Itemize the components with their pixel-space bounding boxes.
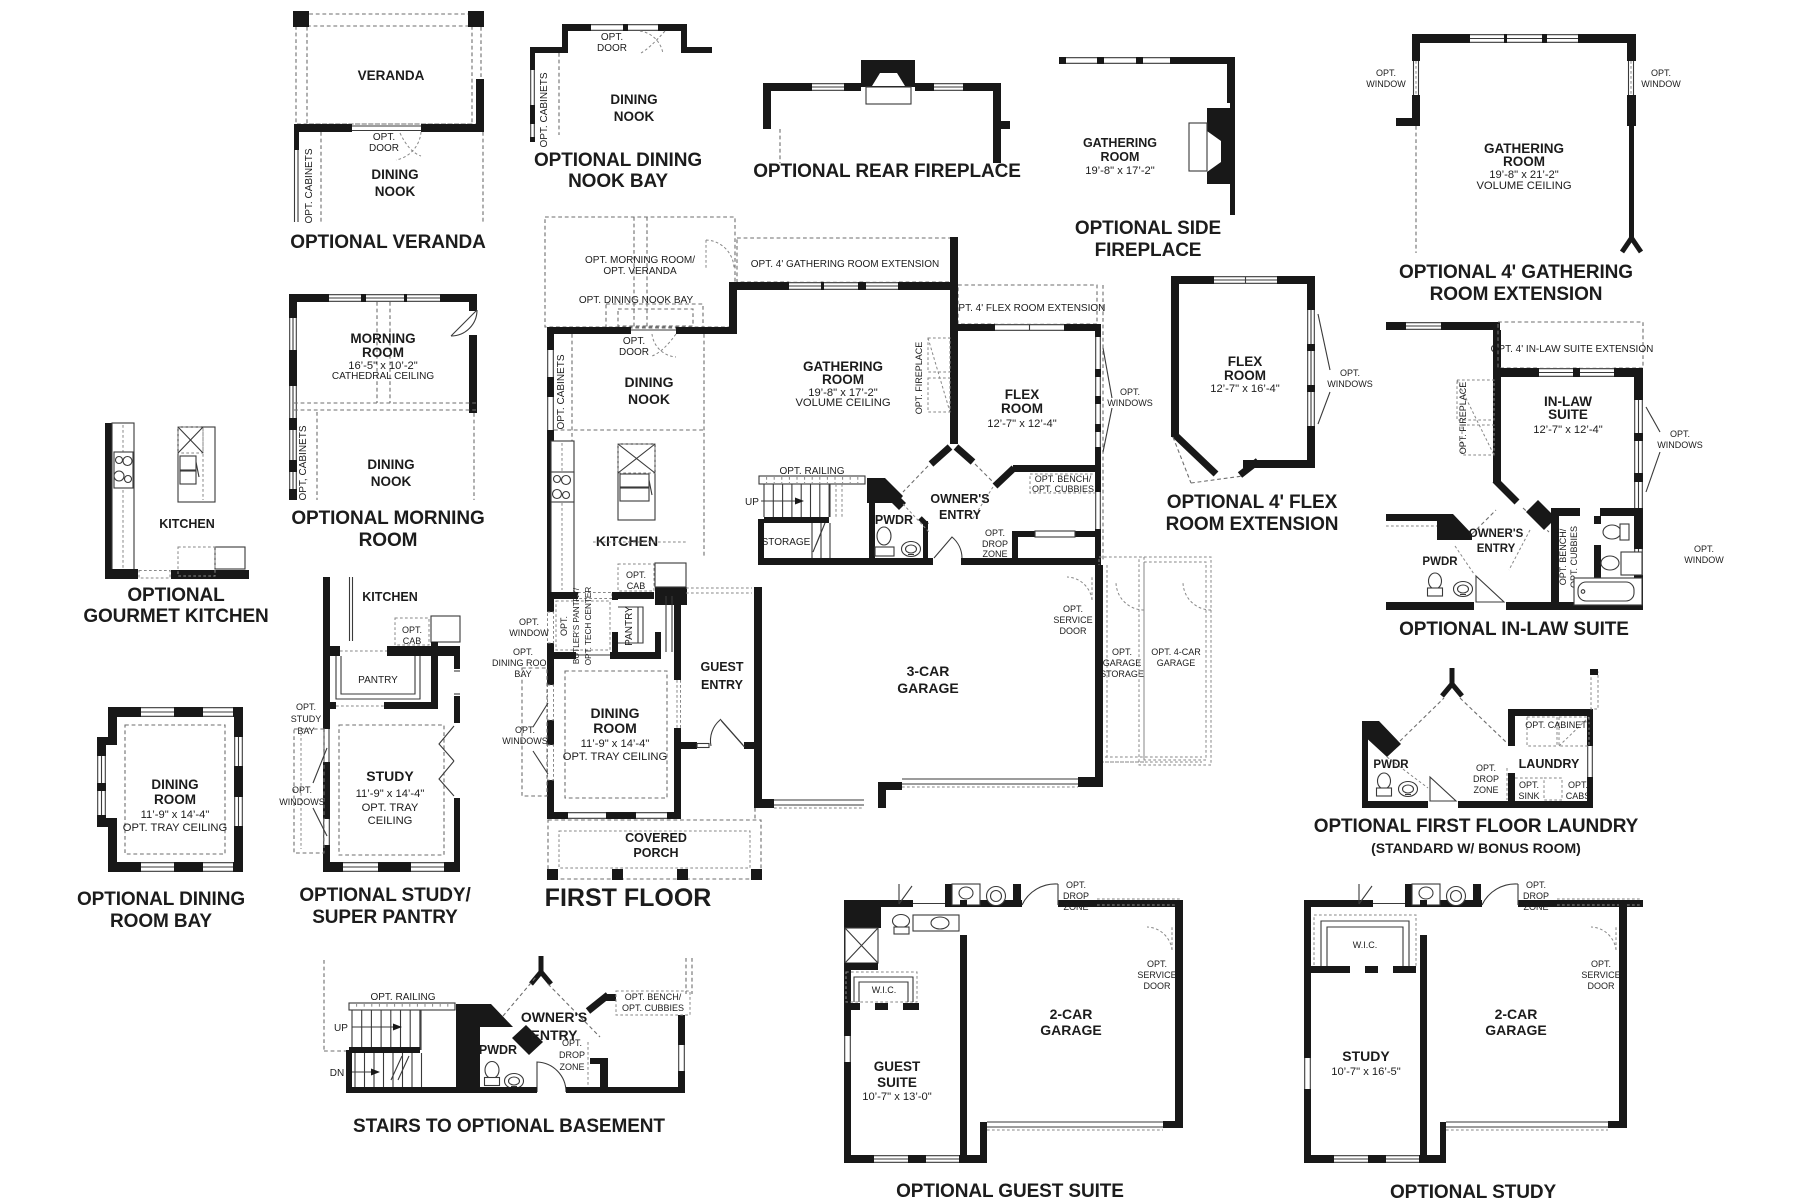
- svg-text:OPT. TRAY CEILING: OPT. TRAY CEILING: [123, 822, 227, 834]
- svg-text:OPT, CABINETS: OPT, CABINETS: [298, 425, 309, 500]
- svg-text:NOOK BAY: NOOK BAY: [568, 171, 668, 192]
- svg-text:PANTRY: PANTRY: [358, 675, 398, 686]
- svg-text:KITCHEN: KITCHEN: [362, 590, 418, 604]
- svg-text:ZONE: ZONE: [982, 549, 1007, 559]
- svg-text:WINDOW: WINDOW: [509, 628, 549, 638]
- svg-text:OPT.: OPT.: [1147, 959, 1167, 969]
- svg-text:ENTRY: ENTRY: [939, 508, 982, 522]
- svg-text:OPT.: OPT.: [292, 785, 312, 795]
- svg-text:ROOM: ROOM: [1001, 401, 1043, 416]
- svg-text:PORCH: PORCH: [633, 846, 678, 860]
- svg-text:OPT. FIREPLACE: OPT. FIREPLACE: [1458, 382, 1468, 455]
- svg-text:ZONE: ZONE: [1063, 902, 1088, 912]
- svg-text:WINDOW: WINDOW: [1366, 79, 1406, 89]
- svg-text:OPTIONAL REAR FIREPLACE: OPTIONAL REAR FIREPLACE: [753, 161, 1021, 182]
- svg-text:GARAGE: GARAGE: [1103, 658, 1142, 668]
- svg-text:OPT.: OPT.: [1591, 959, 1611, 969]
- svg-text:GARAGE: GARAGE: [1040, 1022, 1101, 1038]
- svg-text:OPT.: OPT.: [513, 647, 533, 657]
- svg-text:PWDR: PWDR: [875, 513, 913, 527]
- svg-text:OPTIONAL VERANDA: OPTIONAL VERANDA: [290, 232, 486, 253]
- svg-text:OPTIONAL 4' FLEX: OPTIONAL 4' FLEX: [1167, 492, 1338, 513]
- svg-text:OPTIONAL IN-LAW SUITE: OPTIONAL IN-LAW SUITE: [1399, 619, 1629, 640]
- svg-text:OPT. CABINETS: OPT. CABINETS: [556, 354, 567, 429]
- svg-text:GOURMET KITCHEN: GOURMET KITCHEN: [83, 606, 268, 627]
- svg-text:OPT. TRAY CEILING: OPT. TRAY CEILING: [563, 751, 667, 763]
- svg-text:OPTIONAL STUDY/: OPTIONAL STUDY/: [299, 885, 471, 906]
- svg-text:OPT. MORNING ROOM/: OPT. MORNING ROOM/: [585, 255, 695, 266]
- svg-text:CATHEDRAL CEILING: CATHEDRAL CEILING: [332, 371, 434, 382]
- svg-text:OPT.: OPT.: [1112, 647, 1132, 657]
- svg-text:ENTRY: ENTRY: [701, 678, 744, 692]
- svg-text:OWNER'S: OWNER'S: [521, 1009, 587, 1025]
- svg-text:DOOR: DOOR: [1144, 981, 1172, 991]
- svg-text:DROP: DROP: [1473, 774, 1499, 784]
- svg-text:DINING: DINING: [151, 777, 198, 792]
- svg-text:OPT. RAILING: OPT. RAILING: [370, 992, 435, 1003]
- svg-text:GUEST: GUEST: [874, 1059, 921, 1074]
- svg-text:OWNER'S: OWNER'S: [1469, 528, 1524, 540]
- svg-text:DOOR: DOOR: [1588, 981, 1616, 991]
- svg-text:WINDOW: WINDOW: [1684, 555, 1724, 565]
- svg-text:OPT.: OPT.: [1651, 68, 1671, 78]
- svg-text:DINING: DINING: [367, 457, 414, 472]
- svg-text:DINING: DINING: [625, 374, 674, 390]
- svg-text:OPT. CABINETS: OPT. CABINETS: [1525, 720, 1593, 730]
- svg-text:ROOM: ROOM: [1224, 368, 1266, 383]
- svg-text:NOOK: NOOK: [375, 184, 416, 199]
- svg-text:11’-9" x 14’-4": 11’-9" x 14’-4": [356, 788, 425, 800]
- svg-text:DINING: DINING: [371, 167, 418, 182]
- svg-text:OPT.: OPT.: [601, 32, 623, 43]
- svg-text:11’-9" x 14’-4": 11’-9" x 14’-4": [581, 738, 650, 750]
- svg-text:OPT. TECH CENTER: OPT. TECH CENTER: [584, 587, 593, 666]
- svg-text:OPT.: OPT.: [1120, 387, 1140, 397]
- svg-text:12’-7" x 12’-4": 12’-7" x 12’-4": [1533, 424, 1603, 436]
- svg-text:OPT.: OPT.: [1568, 780, 1588, 790]
- svg-text:ENTRY: ENTRY: [1477, 543, 1516, 555]
- svg-text:ROOM: ROOM: [154, 792, 196, 807]
- svg-text:WINDOWS: WINDOWS: [1657, 440, 1703, 450]
- svg-text:OPT.: OPT.: [519, 617, 539, 627]
- svg-text:SERVICE: SERVICE: [1053, 615, 1092, 625]
- svg-text:CAB: CAB: [627, 581, 646, 591]
- svg-text:STORAGE: STORAGE: [762, 537, 811, 548]
- svg-text:DOOR: DOOR: [369, 143, 399, 154]
- svg-text:WINDOWS: WINDOWS: [1107, 398, 1153, 408]
- svg-text:SUITE: SUITE: [877, 1075, 917, 1090]
- svg-text:ROOM EXTENSION: ROOM EXTENSION: [1430, 284, 1603, 305]
- svg-text:OPT. 4' GATHERING ROOM EXTENSI: OPT. 4' GATHERING ROOM EXTENSION: [751, 259, 939, 270]
- svg-text:OWNER'S: OWNER'S: [930, 492, 989, 506]
- svg-text:ROOM: ROOM: [593, 720, 637, 736]
- svg-text:WINDOWS: WINDOWS: [502, 736, 548, 746]
- svg-text:SUITE: SUITE: [1548, 407, 1588, 422]
- svg-text:ZONE: ZONE: [1473, 785, 1498, 795]
- svg-text:CAB: CAB: [403, 636, 422, 646]
- svg-text:12’-7" x 12’-4": 12’-7" x 12’-4": [987, 418, 1057, 430]
- svg-text:STUDY: STUDY: [1342, 1048, 1390, 1064]
- svg-text:OPT. CUBBIES: OPT. CUBBIES: [1032, 484, 1094, 494]
- svg-text:OPT. CABINETS: OPT. CABINETS: [304, 148, 315, 223]
- svg-text:UP: UP: [334, 1023, 348, 1034]
- svg-text:OPT. CABINETS: OPT. CABINETS: [539, 72, 550, 147]
- svg-text:ROOM: ROOM: [822, 372, 864, 387]
- svg-text:LAUNDRY: LAUNDRY: [1519, 757, 1580, 771]
- svg-text:11’-9" x 14’-4": 11’-9" x 14’-4": [141, 809, 210, 821]
- svg-text:OPTIONAL DINING: OPTIONAL DINING: [77, 889, 245, 910]
- svg-text:STORAGE: STORAGE: [1100, 669, 1144, 679]
- svg-text:OPT.: OPT.: [1519, 780, 1539, 790]
- svg-text:OPT. 4' FLEX ROOM EXTENSION: OPT. 4' FLEX ROOM EXTENSION: [951, 303, 1106, 314]
- svg-text:OPT. VERANDA: OPT. VERANDA: [603, 266, 677, 277]
- svg-text:OPT.: OPT.: [1340, 368, 1360, 378]
- svg-text:10’-7" x 13’-0": 10’-7" x 13’-0": [862, 1091, 932, 1103]
- svg-text:GARAGE: GARAGE: [897, 680, 958, 696]
- svg-text:SERVICE: SERVICE: [1137, 970, 1176, 980]
- svg-text:OPTIONAL DINING: OPTIONAL DINING: [534, 150, 702, 171]
- svg-text:DOOR: DOOR: [619, 347, 649, 358]
- svg-text:ROOM: ROOM: [359, 530, 418, 551]
- svg-text:OPT.: OPT.: [1526, 880, 1546, 890]
- svg-text:GARAGE: GARAGE: [1157, 658, 1196, 668]
- svg-text:WINDOWS: WINDOWS: [1327, 379, 1373, 389]
- svg-text:STUDY: STUDY: [291, 714, 322, 724]
- svg-text:OPT.: OPT.: [373, 132, 395, 143]
- svg-text:DOOR: DOOR: [597, 43, 627, 54]
- svg-text:PWDR: PWDR: [1422, 556, 1458, 568]
- svg-text:2-CAR: 2-CAR: [1050, 1006, 1093, 1022]
- svg-text:FLEX: FLEX: [1005, 387, 1040, 402]
- svg-text:GATHERING: GATHERING: [1083, 136, 1157, 150]
- svg-text:FIREPLACE: FIREPLACE: [1095, 240, 1202, 261]
- svg-text:OPTIONAL STUDY: OPTIONAL STUDY: [1390, 1182, 1557, 1200]
- svg-text:BAY: BAY: [297, 726, 314, 736]
- svg-text:VERANDA: VERANDA: [358, 68, 425, 83]
- svg-text:OPT.: OPT.: [985, 528, 1005, 538]
- svg-text:BAY: BAY: [514, 669, 531, 679]
- svg-text:OPT.: OPT.: [296, 702, 316, 712]
- svg-text:2-CAR: 2-CAR: [1495, 1006, 1538, 1022]
- svg-text:19’-8" x 17’-2": 19’-8" x 17’-2": [1085, 165, 1155, 177]
- svg-text:ROOM: ROOM: [362, 345, 404, 360]
- svg-text:OPT.: OPT.: [1066, 880, 1086, 890]
- svg-text:OPT. 4' IN-LAW SUITE EXTENSION: OPT. 4' IN-LAW SUITE EXTENSION: [1491, 344, 1654, 355]
- svg-text:OPTIONAL MORNING: OPTIONAL MORNING: [291, 508, 484, 529]
- svg-text:SUPER PANTRY: SUPER PANTRY: [312, 907, 458, 928]
- svg-text:SERVICE: SERVICE: [1581, 970, 1620, 980]
- svg-text:DOOR: DOOR: [1060, 626, 1088, 636]
- svg-text:OPT. 4-CAR: OPT. 4-CAR: [1151, 647, 1201, 657]
- svg-text:NOOK: NOOK: [371, 474, 412, 489]
- svg-text:OPT.: OPT.: [623, 336, 645, 347]
- svg-text:GARAGE: GARAGE: [1485, 1022, 1546, 1038]
- svg-text:OPT.: OPT.: [1476, 763, 1496, 773]
- svg-text:DROP: DROP: [559, 1050, 585, 1060]
- svg-text:PANTRY: PANTRY: [624, 606, 635, 646]
- svg-text:12’-7" x 16’-4": 12’-7" x 16’-4": [1210, 383, 1280, 395]
- svg-text:GUEST: GUEST: [700, 660, 743, 674]
- svg-text:DN: DN: [330, 1068, 344, 1079]
- svg-text:OPT.: OPT.: [515, 725, 535, 735]
- svg-text:DINING ROOM: DINING ROOM: [492, 658, 554, 668]
- svg-text:ROOM: ROOM: [1503, 154, 1545, 169]
- svg-text:VOLUME CEILING: VOLUME CEILING: [1476, 180, 1571, 192]
- svg-text:OPT.: OPT.: [626, 570, 646, 580]
- svg-text:NOOK: NOOK: [614, 109, 655, 124]
- svg-text:DINING: DINING: [591, 705, 640, 721]
- svg-text:ZONE: ZONE: [559, 1062, 584, 1072]
- svg-text:OPT.: OPT.: [402, 625, 422, 635]
- svg-text:STAIRS TO OPTIONAL BASEMENT: STAIRS TO OPTIONAL BASEMENT: [353, 1116, 665, 1137]
- svg-text:OPT. FIREPLACE: OPT. FIREPLACE: [914, 342, 924, 415]
- svg-text:WINDOW: WINDOW: [1641, 79, 1681, 89]
- svg-text:FLEX: FLEX: [1228, 354, 1263, 369]
- svg-text:OPT.: OPT.: [562, 1038, 582, 1048]
- svg-text:STUDY: STUDY: [366, 768, 414, 784]
- svg-text:10’-7" x 16’-5": 10’-7" x 16’-5": [1331, 1066, 1401, 1078]
- svg-text:W.I.C.: W.I.C.: [1353, 940, 1378, 950]
- svg-text:3-CAR: 3-CAR: [907, 663, 950, 679]
- svg-text:OPT.: OPT.: [1063, 604, 1083, 614]
- svg-text:OPT.: OPT.: [1376, 68, 1396, 78]
- svg-text:W.I.C.: W.I.C.: [872, 985, 897, 995]
- svg-text:OPTIONAL FIRST FLOOR LAUNDRY: OPTIONAL FIRST FLOOR LAUNDRY: [1314, 816, 1639, 837]
- svg-text:KITCHEN: KITCHEN: [159, 517, 215, 531]
- svg-text:OPT. BENCH/: OPT. BENCH/: [625, 992, 682, 1002]
- svg-text:ROOM EXTENSION: ROOM EXTENSION: [1166, 514, 1339, 535]
- svg-text:DROP: DROP: [1523, 891, 1549, 901]
- svg-text:WINDOWS: WINDOWS: [279, 797, 325, 807]
- svg-text:UP: UP: [745, 497, 759, 508]
- svg-text:CEILING: CEILING: [368, 815, 413, 827]
- svg-text:OPT. RAILING: OPT. RAILING: [779, 466, 844, 477]
- svg-text:SINK: SINK: [1518, 791, 1539, 801]
- svg-text:VOLUME CEILING: VOLUME CEILING: [795, 397, 890, 409]
- svg-text:OPTIONAL SIDE: OPTIONAL SIDE: [1075, 218, 1221, 239]
- svg-text:(STANDARD W/ BONUS ROOM): (STANDARD W/ BONUS ROOM): [1371, 840, 1581, 856]
- svg-text:KITCHEN: KITCHEN: [596, 533, 658, 549]
- svg-text:OPTIONAL 4' GATHERING: OPTIONAL 4' GATHERING: [1399, 262, 1633, 283]
- svg-text:ROOM BAY: ROOM BAY: [110, 911, 212, 932]
- svg-text:OPT. BENCH/: OPT. BENCH/: [1558, 528, 1568, 585]
- svg-text:ZONE: ZONE: [1523, 902, 1548, 912]
- svg-text:COVERED: COVERED: [625, 831, 687, 845]
- svg-text:DROP: DROP: [982, 539, 1008, 549]
- svg-text:DINING: DINING: [610, 92, 657, 107]
- svg-text:PWDR: PWDR: [479, 1043, 517, 1057]
- svg-text:OPT. BENCH/: OPT. BENCH/: [1035, 474, 1092, 484]
- svg-text:ROOM: ROOM: [1101, 150, 1140, 164]
- svg-text:FIRST FLOOR: FIRST FLOOR: [545, 884, 712, 912]
- svg-text:OPTIONAL: OPTIONAL: [127, 585, 225, 606]
- svg-text:OPT.: OPT.: [559, 616, 569, 636]
- svg-text:MORNING: MORNING: [350, 331, 415, 346]
- svg-text:OPT.: OPT.: [1670, 429, 1690, 439]
- svg-text:NOOK: NOOK: [628, 391, 670, 407]
- svg-text:OPTIONAL GUEST SUITE: OPTIONAL GUEST SUITE: [896, 1181, 1124, 1200]
- svg-text:OPT.: OPT.: [1694, 544, 1714, 554]
- svg-text:DROP: DROP: [1063, 891, 1089, 901]
- svg-text:OPT. TRAY: OPT. TRAY: [362, 802, 419, 814]
- svg-text:OPT. CUBBIES: OPT. CUBBIES: [622, 1003, 684, 1013]
- svg-text:CABS: CABS: [1566, 791, 1591, 801]
